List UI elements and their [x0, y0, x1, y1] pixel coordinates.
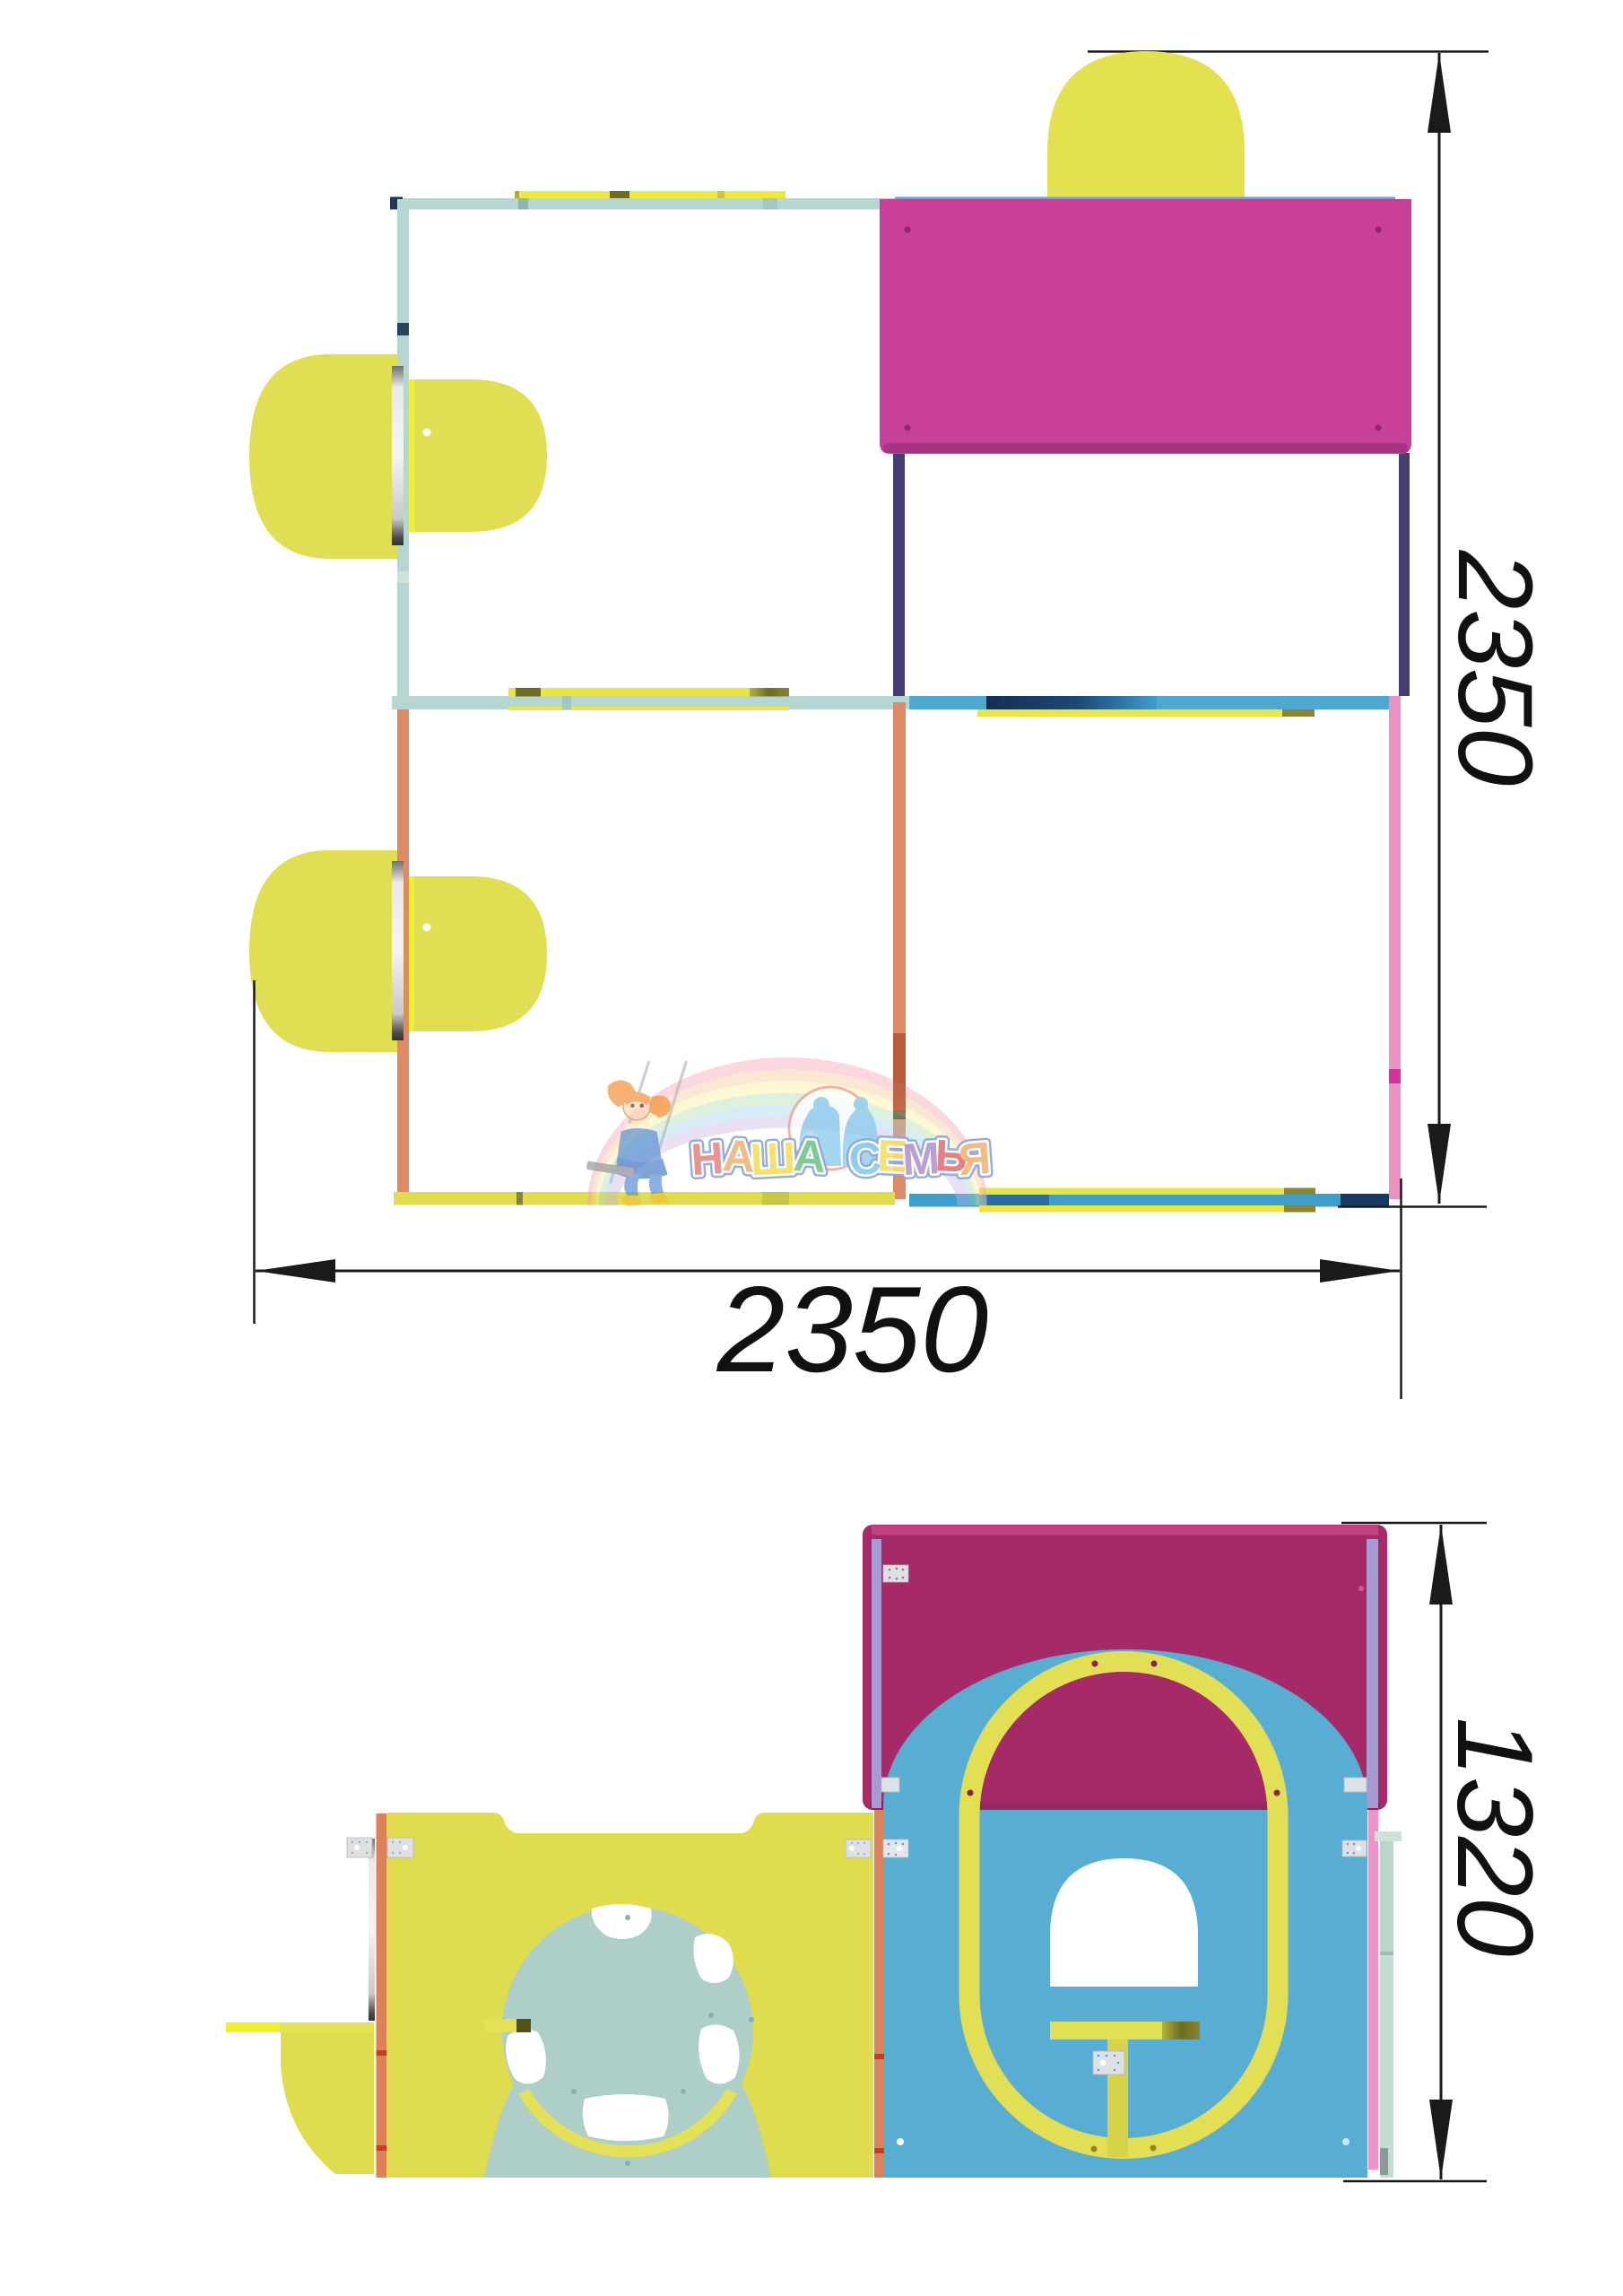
svg-text:Н: Н [690, 1133, 725, 1185]
svg-text:2350: 2350 [1436, 550, 1554, 787]
svg-text:1320: 1320 [1435, 1718, 1555, 1957]
svg-text:А: А [792, 1130, 828, 1182]
svg-text:Я: Я [957, 1133, 993, 1185]
svg-text:Ш: Ш [750, 1133, 797, 1186]
svg-text:2350: 2350 [716, 1261, 989, 1397]
